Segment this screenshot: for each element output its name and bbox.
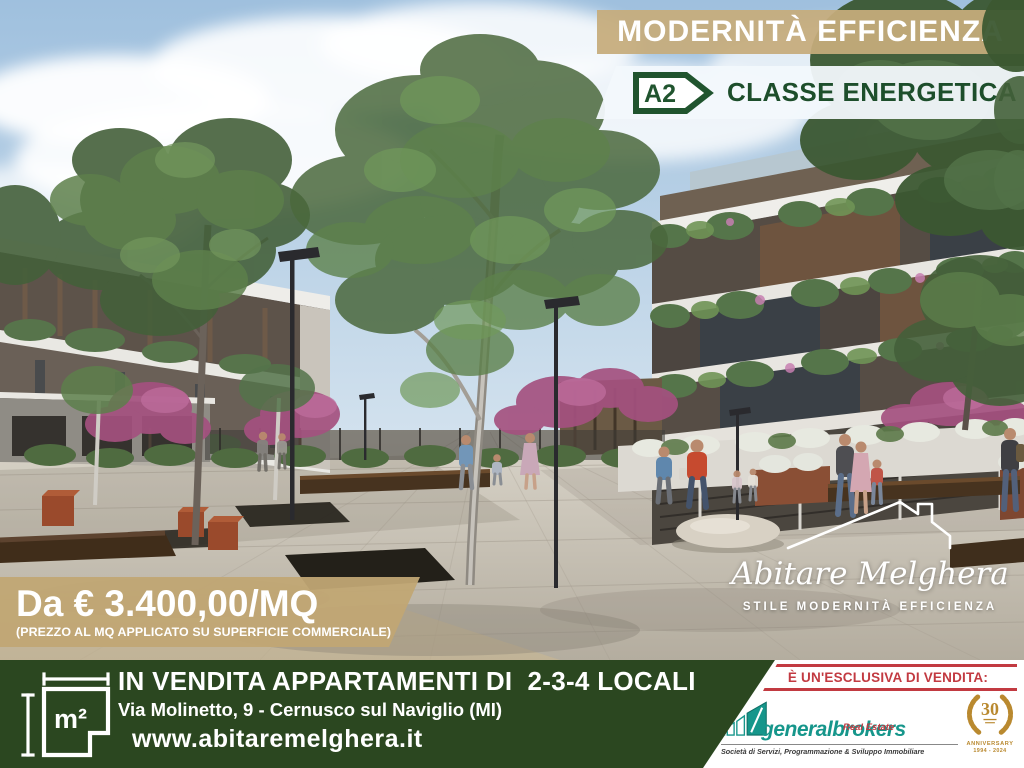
anniversary-badge: 30 ANNIVERSARY 1994 - 2024 bbox=[960, 692, 1020, 754]
footer-address: Via Molinetto, 9 - Cernusco sul Naviglio… bbox=[118, 699, 696, 721]
square-meters-icon: m² bbox=[20, 671, 114, 759]
agency-division: Real Estate bbox=[843, 722, 894, 733]
brand-logo: Abitare Melghera STILE MODERNITÀ EFFICIE… bbox=[728, 492, 1012, 613]
sqm-symbol: m² bbox=[54, 704, 87, 734]
anniversary-years: 1994 - 2024 bbox=[960, 748, 1020, 754]
footer-headline: IN VENDITA APPARTAMENTI DI 2-3-4 LOCALI bbox=[118, 666, 696, 697]
laurel-wreath-icon: 30 bbox=[961, 692, 1019, 736]
exclusive-sale-label: È UN'ESCLUSIVA DI VENDITA: bbox=[788, 670, 988, 685]
brand-name: Abitare Melghera bbox=[728, 559, 1012, 590]
energy-class-banner: A2 CLASSE ENERGETICA bbox=[588, 66, 1024, 119]
real-estate-poster: MODERNITÀ EFFICIENZA A2 CLASSE ENERGETIC… bbox=[0, 0, 1024, 768]
exclusive-sale-header: È UN'ESCLUSIVA DI VENDITA: bbox=[759, 664, 1017, 691]
anniversary-number: 30 bbox=[981, 699, 999, 719]
agency-logo: generalbrokers bbox=[717, 700, 906, 740]
price-banner: Da € 3.400,00/MQ (PREZZO AL MQ APPLICATO… bbox=[0, 577, 420, 647]
modernita-banner: MODERNITÀ EFFICIENZA bbox=[597, 10, 1024, 54]
foliage-overlay bbox=[968, 0, 1024, 215]
agency-tagline: Società di Servizi, Programmazione & Svi… bbox=[721, 744, 958, 756]
roof-icon bbox=[782, 492, 958, 554]
price-main: Da € 3.400,00/MQ bbox=[16, 585, 420, 623]
energy-class-a2-icon: A2 bbox=[632, 71, 714, 115]
energy-class-code: A2 bbox=[644, 80, 676, 108]
brand-tagline: STILE MODERNITÀ EFFICIENZA bbox=[728, 601, 1012, 613]
anniversary-label: ANNIVERSARY bbox=[960, 741, 1020, 748]
modernita-banner-text: MODERNITÀ EFFICIENZA bbox=[617, 15, 1004, 49]
price-note: (PREZZO AL MQ APPLICATO SU SUPERFICIE CO… bbox=[16, 625, 420, 639]
footer-website-link[interactable]: www.abitaremelghera.it bbox=[118, 725, 696, 754]
